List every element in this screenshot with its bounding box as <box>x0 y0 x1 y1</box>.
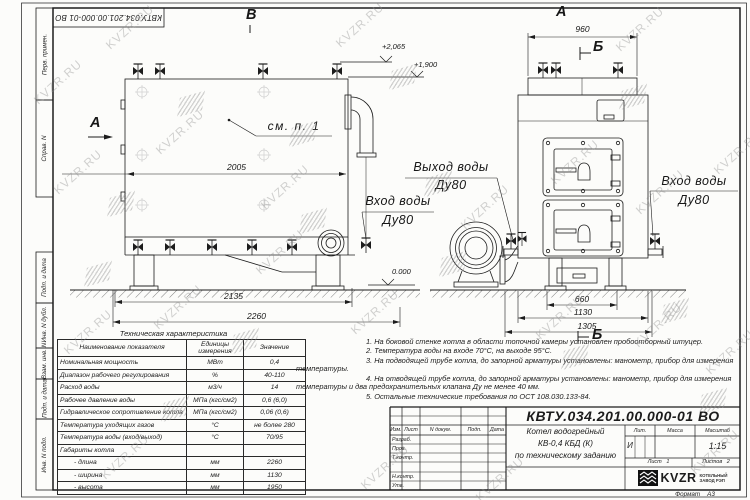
boiler-door-upper <box>543 138 623 196</box>
callout-see-note: см. п. 1 <box>252 119 336 133</box>
callout-inlet-right-line2: Ду80 <box>648 193 740 207</box>
cell: м3/ч <box>187 382 244 395</box>
stamp-inv-dubl: Инв. N дубл. <box>40 302 49 347</box>
table-row: Расход водым3/ч14 <box>58 382 306 395</box>
stamp-podp-data-1: Подп. и дата <box>40 252 49 303</box>
cell: не более 280 <box>244 419 306 432</box>
cell: МПа (кгс/см2) <box>187 394 244 407</box>
cell: 1130 <box>244 469 306 482</box>
dim-support-width: 660 <box>546 294 618 304</box>
cell: Температура воды (вход/выход) <box>58 432 187 445</box>
callout-inlet-left-line1: Вход воды <box>352 194 444 208</box>
col-header-izm: Изм. <box>390 427 402 433</box>
callout-inlet-left-line2: Ду80 <box>352 213 444 227</box>
doc-name-line1: Котел водогрейный <box>507 427 624 436</box>
tech-table-title: Техническая характеристика <box>57 329 290 338</box>
drawing-sheet: Перв. примен. Справ. N Подп. и дата Инв.… <box>0 0 750 500</box>
left-view-boiler <box>62 79 376 290</box>
table-row: Температура воды (вход/выход)°С70/95 <box>58 432 306 445</box>
manufacturer-logo: KVZR КОТЕЛЬНЫЙ ЗАВОД РЭП <box>626 467 739 489</box>
note-5: 5. Остальные технические требования по О… <box>296 393 742 402</box>
section-label-b-top: Б <box>593 39 603 55</box>
dim-top-width: 960 <box>546 24 619 34</box>
cell: мм <box>187 482 244 495</box>
mass-label: Масса <box>655 428 695 434</box>
cell: Номинальная мощность <box>58 357 187 370</box>
stamp-podp-data-2: Подп. и дата <box>40 379 49 419</box>
view-label-a-right: А <box>556 4 566 20</box>
cell <box>244 444 306 457</box>
boiler-door-lower <box>543 200 623 256</box>
note-4: 4. На отводящей трубе котла, до запорной… <box>296 375 742 393</box>
sheet-label: Лист <box>648 459 662 465</box>
cell: Расход воды <box>58 382 187 395</box>
cell: 0,06 (0,6) <box>244 407 306 420</box>
col-header-ndoc: N докум. <box>420 427 461 433</box>
kvzr-logo-icon <box>638 470 658 486</box>
dim-body-width: 1130 <box>547 307 619 317</box>
row-label-tkontr: Т.контр. <box>392 455 422 461</box>
view-label-a-left: А <box>90 115 100 131</box>
technical-notes: 1. На боковой стенке котла в области топ… <box>296 338 742 402</box>
cell: Температура уходящих газов <box>58 419 187 432</box>
cell: % <box>187 369 244 382</box>
callout-inlet-right-line1: Вход воды <box>648 174 740 188</box>
sheets-total: Листов 2 <box>692 459 740 465</box>
dim-total-length: 2260 <box>220 311 293 321</box>
cell: °С <box>187 419 244 432</box>
row-label-nkontr: Н.контр. <box>392 474 422 480</box>
table-row: - высотамм1950 <box>58 482 306 495</box>
cell: 1950 <box>244 482 306 495</box>
table-row: Габариты котла <box>58 444 306 457</box>
tech-table: Наименование показателя Единицы измерени… <box>57 339 306 495</box>
left-view-valves <box>133 64 371 255</box>
cell: МПа (кгс/см2) <box>187 407 244 420</box>
format-note: Формат А3 <box>650 491 740 498</box>
row-label-razrab: Разраб. <box>392 437 422 443</box>
top-left-designation: КВТУ.034.201.00.000-01 ВО <box>53 9 164 26</box>
cell: - длина <box>58 457 187 470</box>
logo-sub-line2: ЗАВОД РЭП <box>700 478 728 483</box>
cell: Гидравлическое сопротивление котла <box>58 407 187 420</box>
logo-subtitle: КОТЕЛЬНЫЙ ЗАВОД РЭП <box>700 473 728 483</box>
stamp-perv-primen: Перв. примен. <box>40 8 49 100</box>
doc-name-line3: по техническому заданию <box>507 451 624 460</box>
table-row: - длинамм2260 <box>58 457 306 470</box>
stamp-vzam-inv: Взам. инв. N <box>40 348 49 379</box>
callout-outlet-line1: Выход воды <box>403 160 499 174</box>
stamp-inv-podl: Инв. N подл. <box>40 419 49 490</box>
blower-fan <box>450 222 527 287</box>
tech-col-units: Единицы измерения <box>187 340 244 357</box>
col-header-data: Дата <box>488 427 506 433</box>
lit-value: И <box>625 441 635 450</box>
cell: Рабочее давление воды <box>58 394 187 407</box>
callout-outlet-line2: Ду80 <box>403 178 499 192</box>
tech-col-name: Наименование показателя <box>58 340 187 357</box>
cell: Диапазон рабочего регулирования <box>58 369 187 382</box>
cell: мм <box>187 457 244 470</box>
right-view-boiler <box>503 63 663 290</box>
note-3: 3. На подводящей трубе котла, до запорно… <box>296 357 742 375</box>
row-label-prov: Пров. <box>392 446 422 452</box>
sheet-number: Лист 1 <box>625 459 692 465</box>
dim-base-length: 2135 <box>197 291 270 301</box>
view-label-v-top: В <box>246 7 256 23</box>
cell: 70/95 <box>244 432 306 445</box>
logo-text: KVZR <box>661 471 697 485</box>
table-row: Рабочее давление водыМПа (кгс/см2)0,6 (6… <box>58 394 306 407</box>
cell: - ширина <box>58 469 187 482</box>
cell <box>187 444 244 457</box>
col-header-podp: Подп. <box>461 427 488 433</box>
elevation-boiler-top: +1,900 <box>414 60 437 69</box>
table-row: Номинальная мощностьМВт0,4 <box>58 357 306 370</box>
scale-value: 1:15 <box>695 441 740 451</box>
note-2: 2. Температура воды на входе 70°С, на вы… <box>296 347 742 356</box>
format-label: Формат <box>675 491 700 498</box>
dim-total-width: 1305 <box>551 321 623 331</box>
table-row: Диапазон рабочего регулирования%40-110 <box>58 369 306 382</box>
table-row: Температура уходящих газов°Сне более 280 <box>58 419 306 432</box>
scale-label: Масштаб <box>695 428 740 434</box>
format-value: А3 <box>707 491 715 498</box>
row-label-utv: Утв. <box>392 483 422 489</box>
cell: 2260 <box>244 457 306 470</box>
sheets-label: Листов <box>702 459 722 465</box>
dim-boiler-length: 2005 <box>200 162 273 172</box>
doc-name-line2: КВ-0,4 КБД (К) <box>507 439 624 448</box>
cell: - высота <box>58 482 187 495</box>
cell: Габариты котла <box>58 444 187 457</box>
title-block-designation: КВТУ.034.201.00.000-01 ВО <box>508 408 738 424</box>
tech-characteristics: Техническая характеристика Наименование … <box>57 329 290 495</box>
cell: МВт <box>187 357 244 370</box>
elevation-ground: 0.000 <box>392 267 411 276</box>
stamp-sprav-n: Справ. N <box>40 100 49 197</box>
sheet-value: 1 <box>666 459 669 465</box>
sheets-value: 2 <box>727 459 730 465</box>
cell: мм <box>187 469 244 482</box>
table-row: - ширинамм1130 <box>58 469 306 482</box>
col-header-list: Лист <box>402 427 420 433</box>
elevation-top: +2,065 <box>382 42 405 51</box>
lit-label: Лит. <box>625 428 655 434</box>
table-row: Гидравлическое сопротивление котлаМПа (к… <box>58 407 306 420</box>
cell: °С <box>187 432 244 445</box>
